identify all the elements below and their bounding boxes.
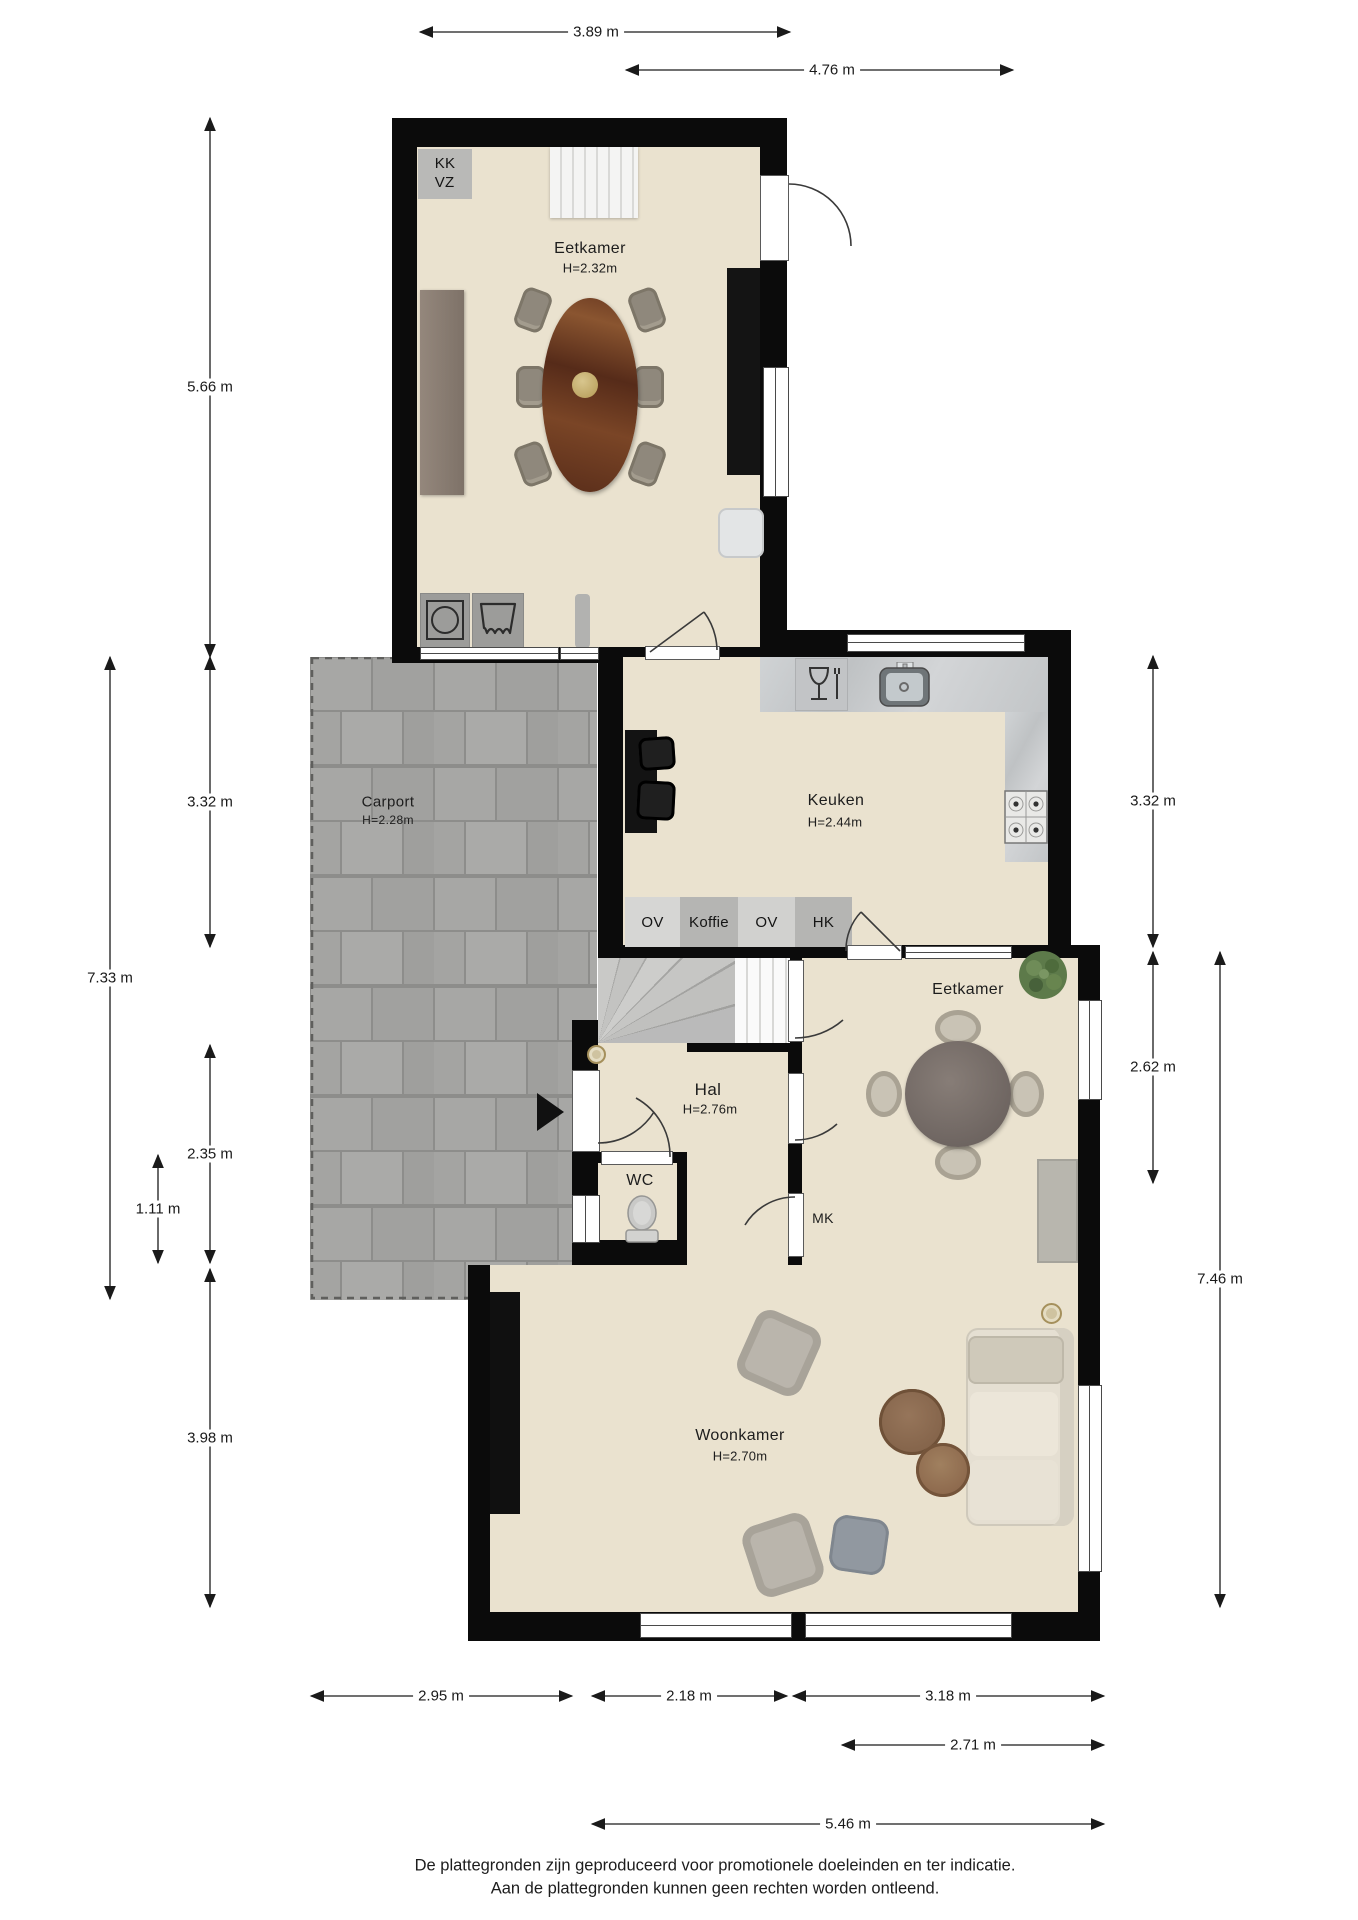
room-label-eetkamer-boven: Eetkamer [554, 240, 626, 258]
appliance-ov-1: OV [625, 897, 680, 947]
pouf [827, 1513, 890, 1576]
tv-cabinet [490, 1292, 520, 1514]
window-eetkamer-boven-right [763, 367, 789, 497]
round-table-chair [866, 1071, 902, 1117]
toilet-icon [620, 1194, 664, 1244]
door-mk [788, 1193, 804, 1257]
window-eetkamer-right [1078, 1000, 1102, 1100]
room-height-carport: H=2.28m [362, 813, 414, 827]
room-height-eetkamer-boven: H=2.32m [563, 261, 618, 276]
appliance-koffie: Koffie [680, 897, 738, 947]
tag-ov-1: OV [641, 914, 663, 931]
tag-hk: HK [813, 914, 834, 931]
sofa-chaise-cushion [968, 1336, 1064, 1384]
dim-right-1: 3.32 m [1125, 793, 1181, 810]
washer-icon [420, 593, 470, 648]
dim-left-2: 3.32 m [182, 794, 238, 811]
dim-bottom-5: 5.46 m [820, 1816, 876, 1833]
tag-ov-2: OV [755, 914, 777, 931]
side-cabinet [1037, 1159, 1078, 1263]
floor-plan-canvas: KKVZ [0, 0, 1358, 1920]
window-eetkamer-boven-bottom [560, 647, 599, 660]
bar-chair [638, 736, 676, 771]
entrance-arrow-icon [537, 1093, 564, 1131]
ceiling-lamp-icon [1041, 1303, 1062, 1324]
dim-left-1: 5.66 m [182, 379, 238, 396]
dim-left-6: 3.98 m [182, 1430, 238, 1447]
footer-line-1: De plattegronden zijn geproduceerd voor … [415, 1857, 1016, 1876]
room-label-keuken: Keuken [808, 792, 865, 810]
hand-basin [718, 508, 764, 558]
appliance-hk: HK [795, 897, 852, 947]
door-hal-eetkamer-2 [788, 1073, 804, 1144]
tag-kk: KK [435, 155, 456, 174]
dim-top-2: 4.76 m [804, 62, 860, 79]
window-eetkamer-top [905, 946, 1012, 959]
room-label-wc: WC [626, 1172, 653, 1190]
round-table-chair [935, 1144, 981, 1180]
door-keuken-eetkamer [847, 945, 902, 960]
room-height-woonkamer: H=2.70m [713, 1449, 768, 1464]
dim-bottom-4: 2.71 m [945, 1737, 1001, 1754]
table-centerpiece [572, 372, 598, 398]
wall-stairs-stub [687, 1042, 797, 1052]
dim-left-5: 1.11 m [131, 1201, 186, 1218]
window-wc [572, 1195, 600, 1243]
tag-koffie: Koffie [689, 914, 729, 931]
door-opening-eetkamer-boven [760, 175, 789, 261]
door-hal-eetkamer-1 [788, 960, 804, 1042]
front-door-opening [572, 1070, 600, 1152]
door-wc [601, 1151, 673, 1165]
sofa-cushion [970, 1460, 1058, 1520]
dim-bottom-1: 2.95 m [413, 1688, 469, 1705]
stairs-lower-straight [735, 958, 790, 1043]
bar-chair [636, 780, 676, 821]
sofa-cushion [970, 1392, 1058, 1456]
window-eetkamer-boven-bottom [420, 647, 559, 660]
round-table [905, 1041, 1011, 1147]
dim-bottom-3: 3.18 m [920, 1688, 976, 1705]
dim-left-4: 2.35 m [182, 1146, 238, 1163]
tag-vz: VZ [435, 174, 456, 193]
dryer-icon [472, 593, 524, 648]
hal-lower-floor [687, 1152, 788, 1265]
tall-cabinet [727, 268, 760, 475]
dishwasher-icon [795, 658, 848, 711]
door-eetkamer-keuken [645, 646, 720, 660]
window-keuken-top [847, 634, 1025, 652]
carport-paving [310, 657, 597, 1300]
footer-line-2: Aan de plattegronden kunnen geen rechten… [491, 1880, 940, 1899]
dim-right-3: 7.46 m [1192, 1271, 1248, 1288]
dim-bottom-2: 2.18 m [661, 1688, 717, 1705]
dining-chair [634, 366, 664, 408]
radiator [575, 594, 590, 648]
room-label-hal: Hal [695, 1080, 722, 1100]
window-woonkamer-bottom [805, 1613, 1012, 1638]
room-label-mk: MK [812, 1210, 834, 1226]
room-label-eetkamer: Eetkamer [932, 981, 1004, 999]
dim-right-2: 2.62 m [1125, 1059, 1181, 1076]
coffee-table [916, 1443, 970, 1497]
sink-icon [877, 662, 932, 708]
sideboard [420, 290, 464, 495]
round-table-chair [1008, 1071, 1044, 1117]
stairs-upper [550, 147, 638, 218]
room-height-keuken: H=2.44m [808, 815, 863, 830]
appliance-ov-2: OV [738, 897, 795, 947]
window-woonkamer-bottom [640, 1613, 792, 1638]
room-label-carport: Carport [362, 794, 415, 811]
room-height-hal: H=2.76m [683, 1102, 738, 1117]
room-label-woonkamer: Woonkamer [695, 1427, 785, 1445]
dim-top-1: 3.89 m [568, 24, 624, 41]
tag-kk-vz: KKVZ [418, 149, 472, 199]
ceiling-lamp-icon [587, 1045, 606, 1064]
window-woonkamer-right [1078, 1385, 1102, 1572]
dim-left-3: 7.33 m [82, 970, 138, 987]
stove-icon [1004, 790, 1048, 844]
plant-icon [1016, 948, 1070, 1002]
stairs-winder [598, 958, 735, 1043]
